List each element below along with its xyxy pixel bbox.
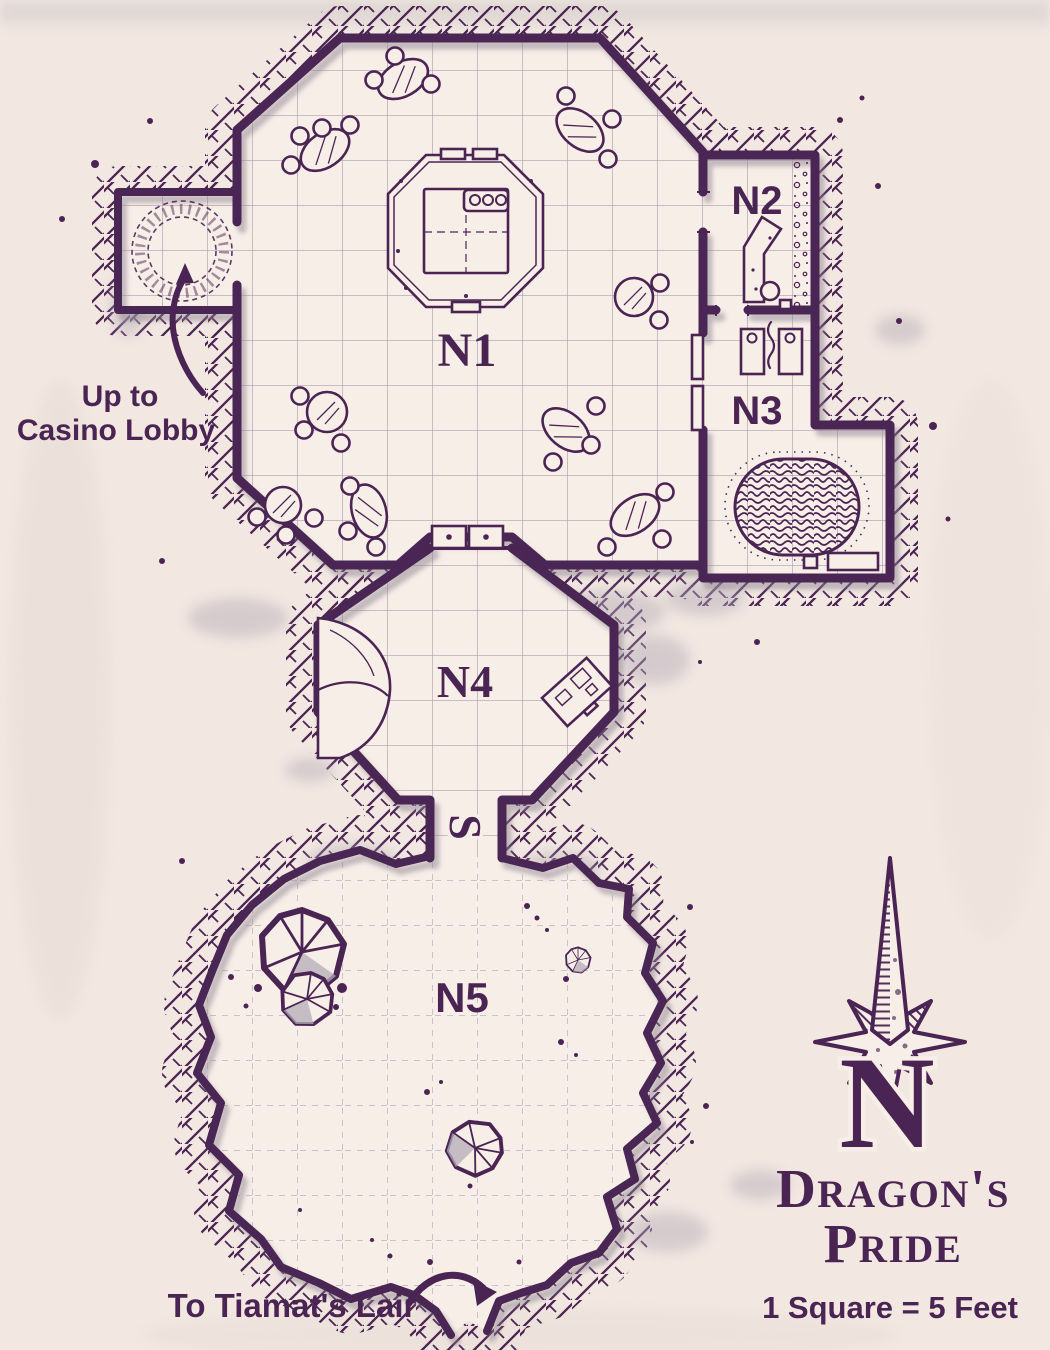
chair [342,478,359,495]
chair [292,128,309,145]
chair [314,120,331,137]
exit-caption: To Tiamat's Lair [168,1287,417,1324]
room-label-n4: N4 [437,656,493,707]
dungeon-map: S N1 N2 N3 N4 N5 Up to Cas [0,0,1050,1350]
chair [387,48,404,65]
chair [599,539,616,556]
chair [306,510,323,527]
scale-note: 1 Square = 5 Feet [762,1290,1018,1325]
portal-caption-line2: Casino Lobby [17,414,216,447]
chair [652,275,669,292]
title-line2: Pride [824,1213,963,1274]
round-table [265,487,301,523]
chair [604,111,621,128]
chair [296,422,313,439]
chair [366,72,383,89]
room-label-n3: N3 [731,389,782,433]
chair [651,312,668,329]
title-line1: Dragon's [776,1158,1010,1219]
bench [828,553,878,570]
stalagmite [566,947,591,972]
round-table [307,392,347,432]
crate [804,556,817,568]
chair [654,531,671,548]
round-table [615,278,653,316]
chair [342,117,359,134]
room-label-n1: N1 [438,324,497,377]
chair [340,523,357,540]
portal-caption-line1: Up to [82,380,159,413]
chair [333,435,350,452]
bar-counter [388,149,543,312]
chair [423,76,440,93]
room-label-n2: N2 [731,179,782,223]
secret-stair-marker: S [440,814,491,840]
chair [278,527,295,544]
chair [368,539,385,556]
chair [588,398,605,415]
chair [545,454,562,471]
stool [761,282,779,300]
chair [558,88,575,105]
chair [292,388,309,405]
chair [657,484,674,501]
chair [249,509,266,526]
rubble-strip [791,162,812,306]
crate [780,300,791,309]
chair [583,437,600,454]
room-label-n5: N5 [435,974,489,1021]
compass-letter: N [839,1029,934,1176]
chair [283,157,300,174]
chair [600,151,617,168]
